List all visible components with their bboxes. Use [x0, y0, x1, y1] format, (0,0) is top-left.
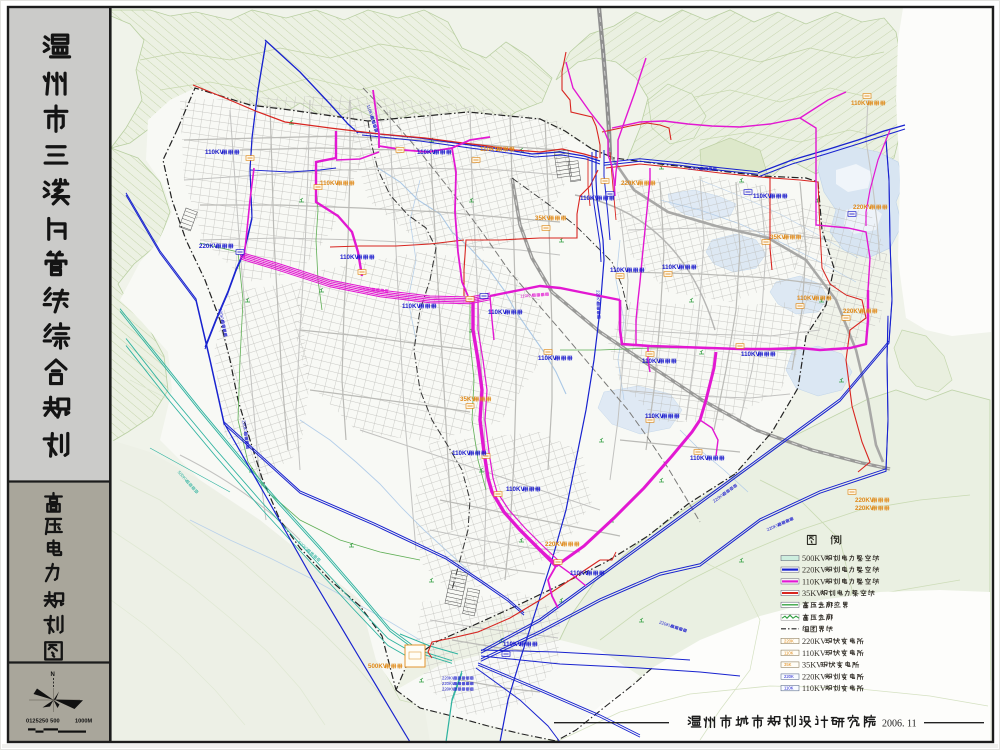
svg-text:110KV: 110KV: [802, 649, 826, 658]
svg-text:220KV: 220KV: [855, 505, 875, 512]
svg-text:110KV: 110KV: [506, 486, 525, 493]
svg-text:110KV: 110KV: [452, 450, 471, 457]
svg-text:0125250 500: 0125250 500: [26, 719, 60, 725]
svg-text:220KV: 220KV: [855, 497, 875, 504]
svg-text:110K: 110K: [784, 650, 794, 655]
svg-text:110KV: 110KV: [802, 578, 826, 587]
svg-text:110KV: 110KV: [690, 455, 709, 462]
svg-text:110KV: 110KV: [205, 149, 224, 156]
svg-text:220K: 220K: [784, 674, 794, 679]
svg-text:110KV: 110KV: [662, 264, 681, 271]
svg-text:500KV: 500KV: [368, 663, 388, 670]
svg-text:110KV: 110KV: [802, 684, 826, 693]
svg-text:110KV: 110KV: [851, 100, 870, 107]
svg-text:220K: 220K: [784, 639, 794, 644]
svg-text:110KV: 110KV: [402, 303, 421, 310]
svg-text:220KV: 220KV: [688, 166, 701, 171]
svg-text:110KV: 110KV: [741, 351, 760, 358]
svg-text:110KV: 110KV: [797, 295, 816, 302]
svg-text:N: N: [51, 672, 55, 678]
svg-text:110KV: 110KV: [610, 267, 629, 274]
svg-text:220KV: 220KV: [802, 566, 826, 575]
svg-text:110KV: 110KV: [580, 195, 599, 202]
svg-text:500KV: 500KV: [802, 554, 826, 563]
svg-text:110KV: 110KV: [520, 293, 533, 299]
svg-text:110KV: 110KV: [503, 641, 522, 648]
svg-text:110KV: 110KV: [417, 149, 436, 156]
svg-text:110KV: 110KV: [480, 146, 499, 153]
svg-text:35KV: 35KV: [802, 589, 822, 598]
svg-text:220KV: 220KV: [442, 686, 455, 691]
svg-text:110KV: 110KV: [320, 180, 339, 187]
svg-text:220KV: 220KV: [442, 681, 455, 686]
svg-text:1000M: 1000M: [75, 719, 92, 725]
svg-text:220KV: 220KV: [853, 204, 873, 211]
svg-text:220KV: 220KV: [802, 673, 826, 682]
svg-text:220KV: 220KV: [442, 675, 455, 680]
svg-text:220KV: 220KV: [595, 290, 600, 303]
svg-text:110KV: 110KV: [340, 254, 359, 261]
svg-text:35K: 35K: [784, 662, 792, 667]
svg-text:110KV: 110KV: [488, 309, 507, 316]
svg-text:220KV: 220KV: [621, 180, 641, 187]
svg-text:35KV: 35KV: [802, 661, 822, 670]
svg-text:110KV: 110KV: [538, 355, 557, 362]
svg-text:110KV: 110KV: [645, 413, 664, 420]
svg-text:110KV: 110KV: [642, 358, 661, 365]
svg-text:220KV: 220KV: [545, 541, 565, 548]
svg-text:110KV: 110KV: [570, 570, 589, 577]
svg-text:220KV: 220KV: [843, 308, 863, 315]
svg-text:220KV: 220KV: [199, 243, 219, 250]
svg-text:110K: 110K: [784, 686, 794, 691]
svg-text:2006. 11: 2006. 11: [882, 719, 917, 730]
svg-text:110KV: 110KV: [753, 193, 772, 200]
svg-text:220KV: 220KV: [802, 637, 826, 646]
